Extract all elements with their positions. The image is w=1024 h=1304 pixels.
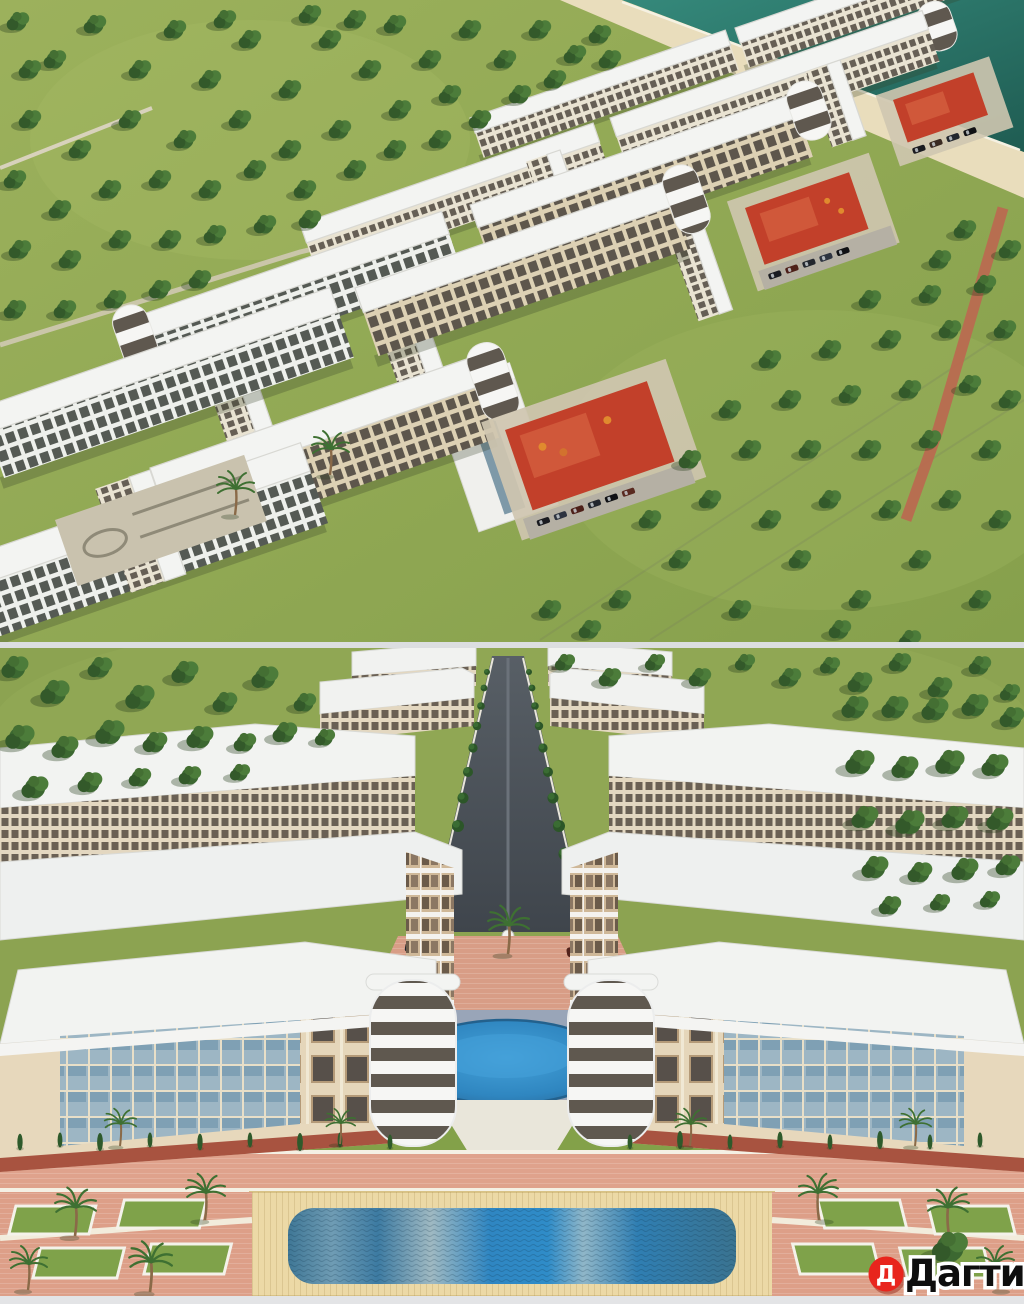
composite-architectural-rendering: Д Дагти: [0, 0, 1024, 1304]
planter-plaza-left: [0, 1174, 252, 1296]
pool-deck: [250, 1192, 774, 1296]
watermark-brand-text: Дагти: [905, 1252, 1024, 1295]
aerial-view-scene: [0, 0, 1024, 642]
courtyard-view-scene: [0, 648, 1024, 1296]
courtyard-view-panel: [0, 648, 1024, 1296]
curved-corner-tower: [370, 980, 456, 1146]
watermark: Д Дагти: [845, 1238, 1024, 1304]
watermark-logo-letter: Д: [876, 1262, 896, 1288]
aerial-view-panel: [0, 0, 1024, 642]
